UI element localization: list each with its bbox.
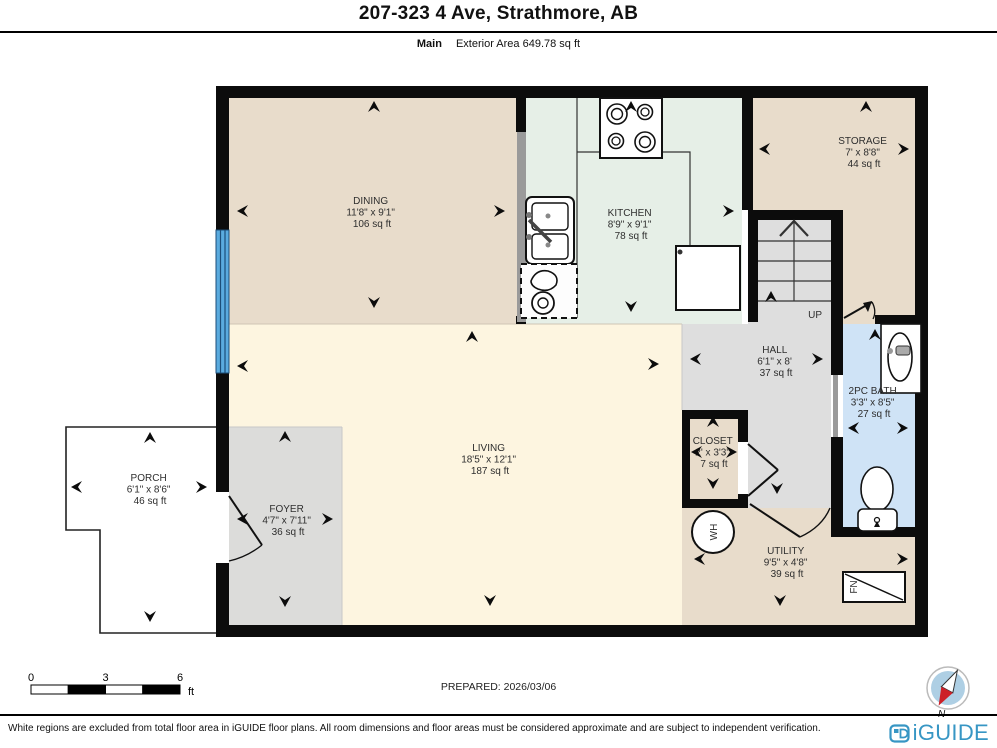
- water-heater-label: WH: [709, 524, 720, 541]
- compass: N: [927, 667, 969, 720]
- porch-outline: [66, 427, 216, 633]
- iguide-logo-icon: [889, 723, 910, 744]
- hall-label: HALL 6'1" x 8' 37 sq ft: [757, 345, 794, 379]
- kitchen-label: KITCHEN 8'9" x 9'1" 78 sq ft: [608, 208, 655, 242]
- iguide-logo-text: iGUIDE: [913, 720, 989, 746]
- utility-label: UTILITY 9'5" x 4'8" 39 sq ft: [764, 546, 811, 580]
- stairs-up-label: UP: [808, 310, 822, 321]
- water-heater: WH: [692, 511, 734, 553]
- room-fills: [229, 98, 915, 625]
- prepared-date: PREPARED: 2026/03/06: [0, 681, 997, 693]
- floorplan-canvas: WH FN DINING 11'8" x 9'1" 106 sq ft KITC…: [0, 0, 997, 748]
- kitchen-sink: [526, 197, 574, 264]
- storage-floor: [753, 98, 915, 210]
- hall-floor-lower: [748, 410, 831, 508]
- furnace: FN: [843, 572, 905, 602]
- footer: White regions are excluded from total fl…: [0, 714, 997, 748]
- storage-floor-column: [843, 210, 915, 324]
- bath-vanity-sink: [881, 324, 921, 393]
- dishwasher-area: [521, 264, 577, 318]
- porch-label: PORCH 6'1" x 8'6" 46 sq ft: [127, 473, 174, 507]
- iguide-logo: iGUIDE: [889, 716, 997, 746]
- window-dining: [216, 230, 229, 373]
- dining-label: DINING 11'8" x 9'1" 106 sq ft: [346, 196, 397, 230]
- furnace-label: FN: [849, 580, 860, 593]
- fridge: [676, 246, 740, 310]
- bath-half-wall: [833, 375, 838, 437]
- disclaimer-text: White regions are excluded from total fl…: [0, 716, 827, 734]
